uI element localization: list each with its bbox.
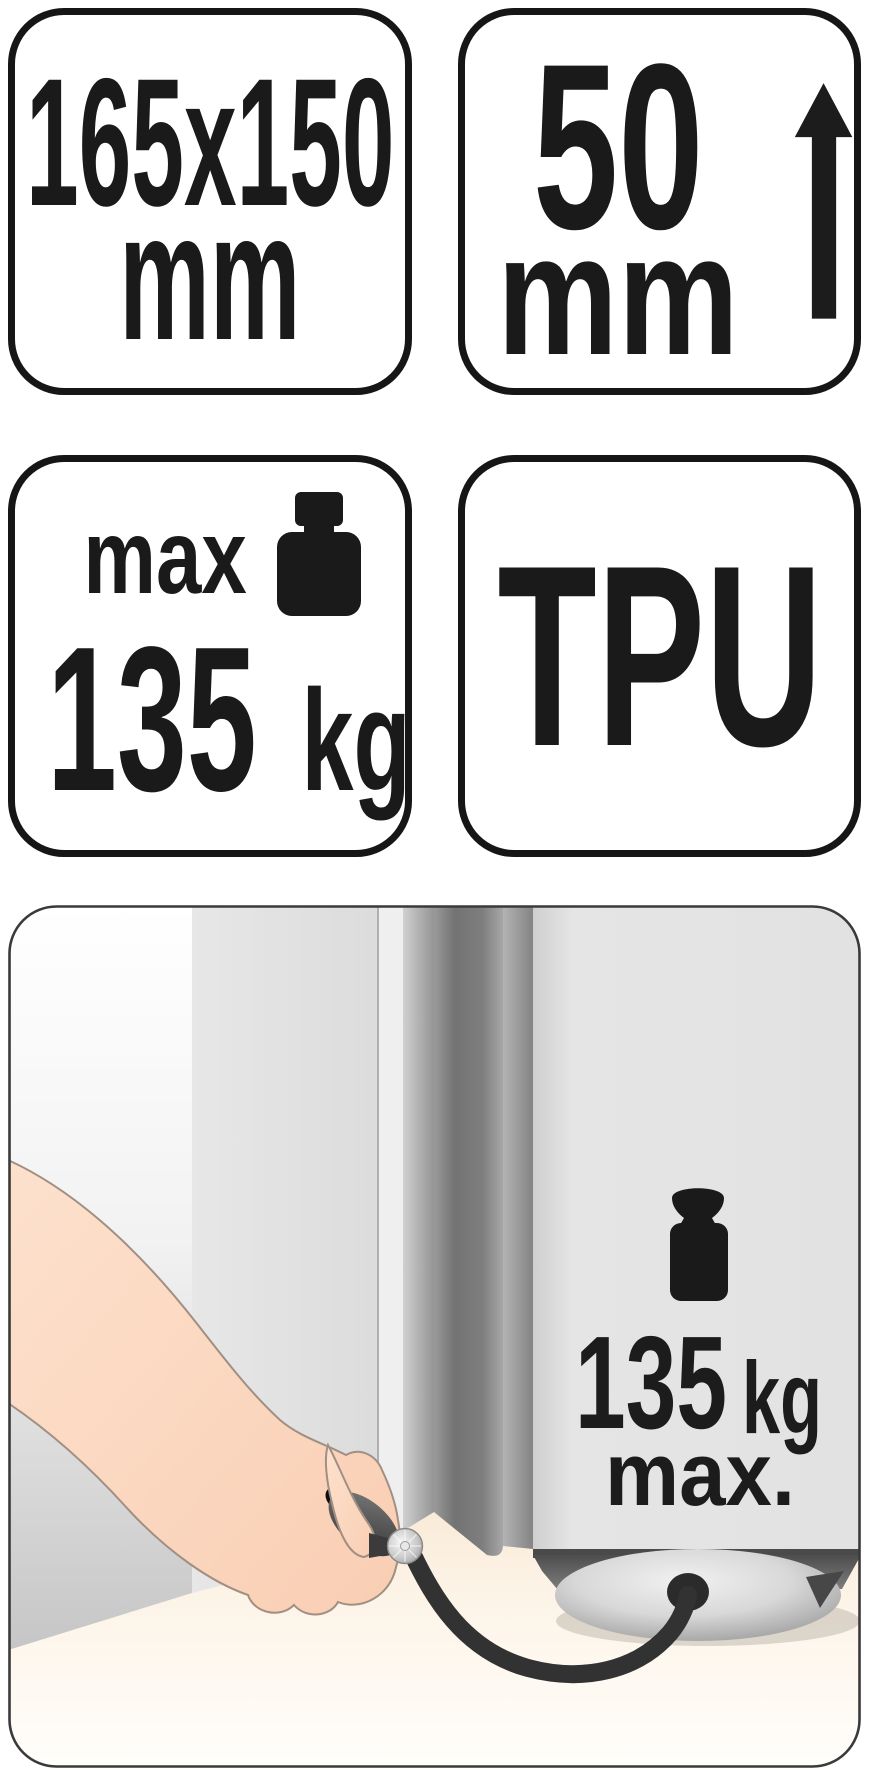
badge-lift-height: 50 mm bbox=[458, 8, 861, 395]
max-load-unit: kg bbox=[301, 669, 410, 813]
illustration-load-qualifier: max. bbox=[605, 1425, 795, 1525]
weight-icon bbox=[277, 492, 361, 616]
height-unit: mm bbox=[497, 209, 739, 381]
material-value: TPU bbox=[497, 527, 822, 785]
door-gap bbox=[434, 905, 503, 1556]
door-edge bbox=[503, 905, 533, 1549]
badge-material: TPU bbox=[458, 455, 861, 857]
arrow-up-icon bbox=[793, 68, 854, 332]
door-frame-edge bbox=[403, 905, 434, 1531]
usage-illustration: 135 kg max. bbox=[8, 905, 861, 1768]
max-load-label: max bbox=[83, 504, 246, 610]
badge-dimensions: 165x150 mm bbox=[8, 8, 412, 395]
door-frame-trim bbox=[377, 905, 403, 1545]
product-infographic: 165x150 mm 50 mm max 135 kg TPU bbox=[0, 0, 869, 1772]
badge-max-load: max 135 kg bbox=[8, 455, 412, 857]
weight-icon bbox=[670, 1188, 728, 1301]
max-load-value: 135 bbox=[47, 616, 257, 822]
dimensions-unit: mm bbox=[119, 185, 300, 367]
